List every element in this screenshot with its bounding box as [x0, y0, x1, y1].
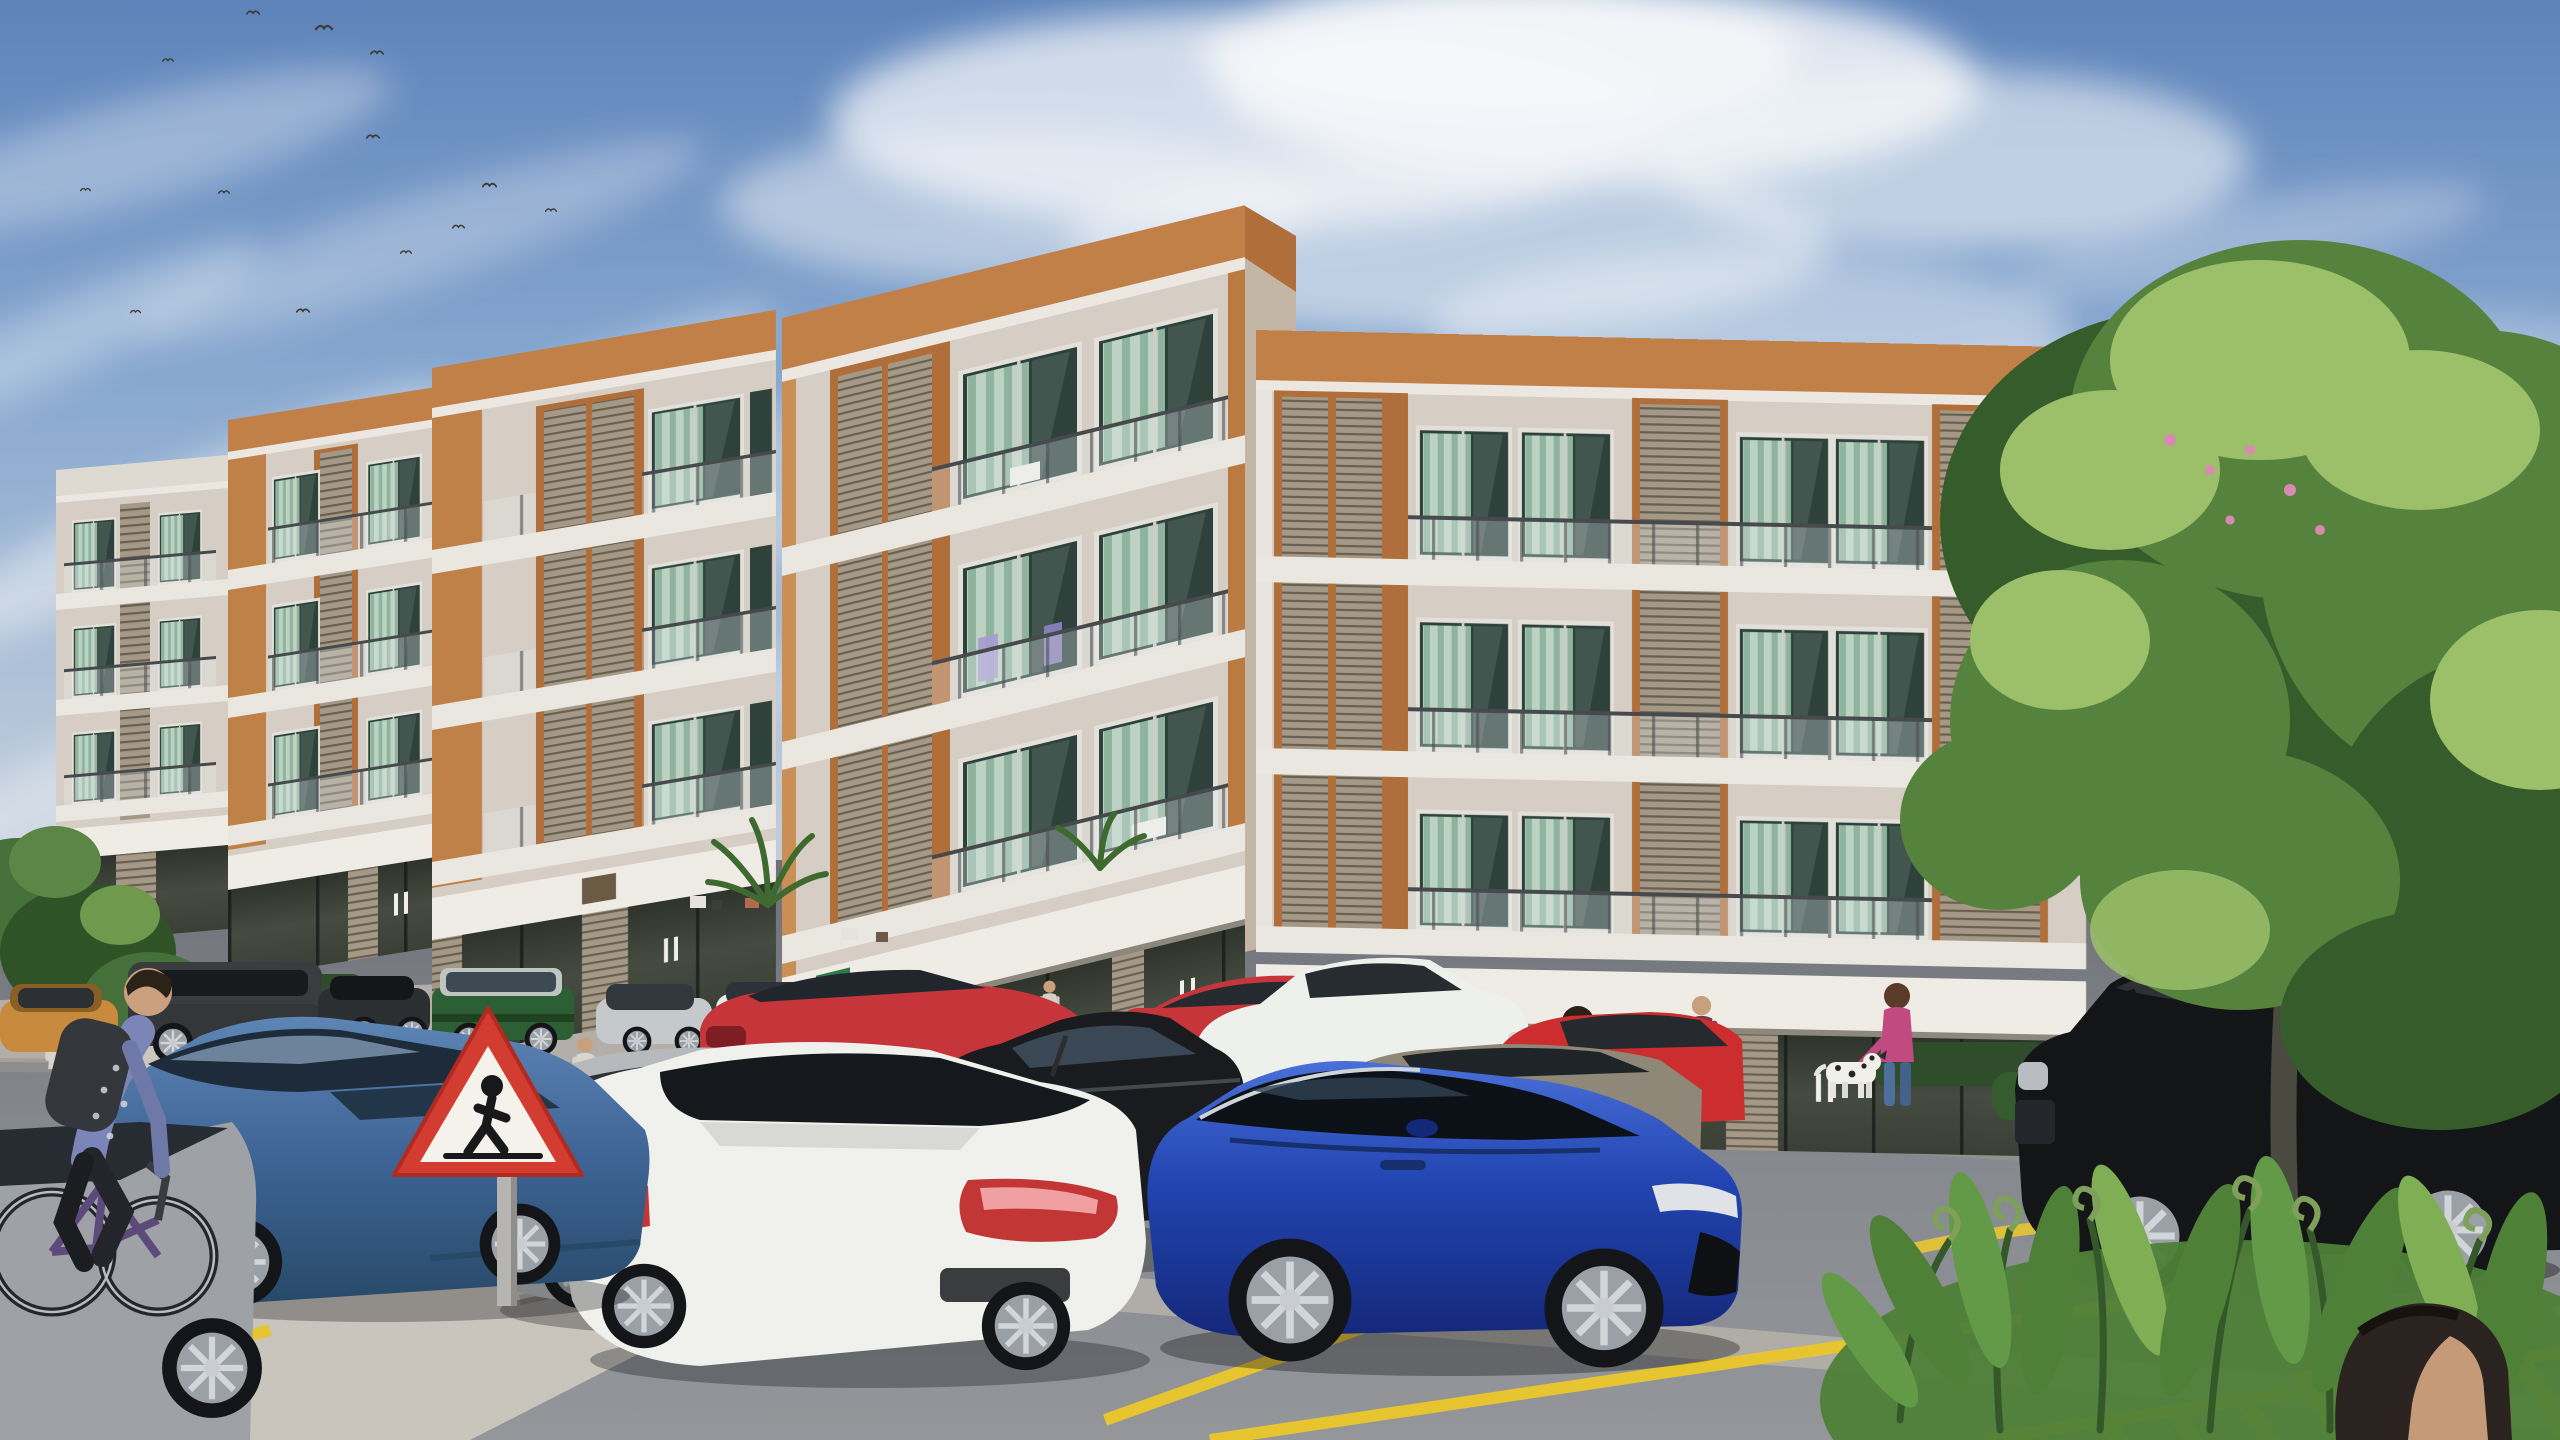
taillight: [706, 1026, 746, 1048]
architectural-rendering: [0, 0, 2560, 1440]
side-mirror: [1406, 1119, 1438, 1137]
orange-corner: [432, 410, 482, 888]
storefront-louver: [348, 866, 378, 961]
louver-screen: [838, 366, 882, 943]
grille: [2015, 1100, 2055, 1144]
orange-corner: [228, 454, 266, 850]
headlight: [2018, 1062, 2048, 1090]
scene-canvas: [0, 0, 2560, 1440]
louver-screen: [1336, 398, 1382, 949]
door-handle: [1380, 1160, 1426, 1170]
louver-screen: [544, 404, 586, 861]
building-2: [228, 387, 434, 980]
louver-screen: [1282, 397, 1328, 948]
white-corner: [1256, 390, 1272, 950]
building-3: [432, 310, 776, 1058]
louver-screen: [888, 353, 932, 930]
orange-corner: [1228, 269, 1245, 855]
louver-screen: [592, 396, 634, 853]
louver-screen: [1640, 404, 1720, 956]
car-silver-sedan-corner: [0, 1122, 262, 1440]
